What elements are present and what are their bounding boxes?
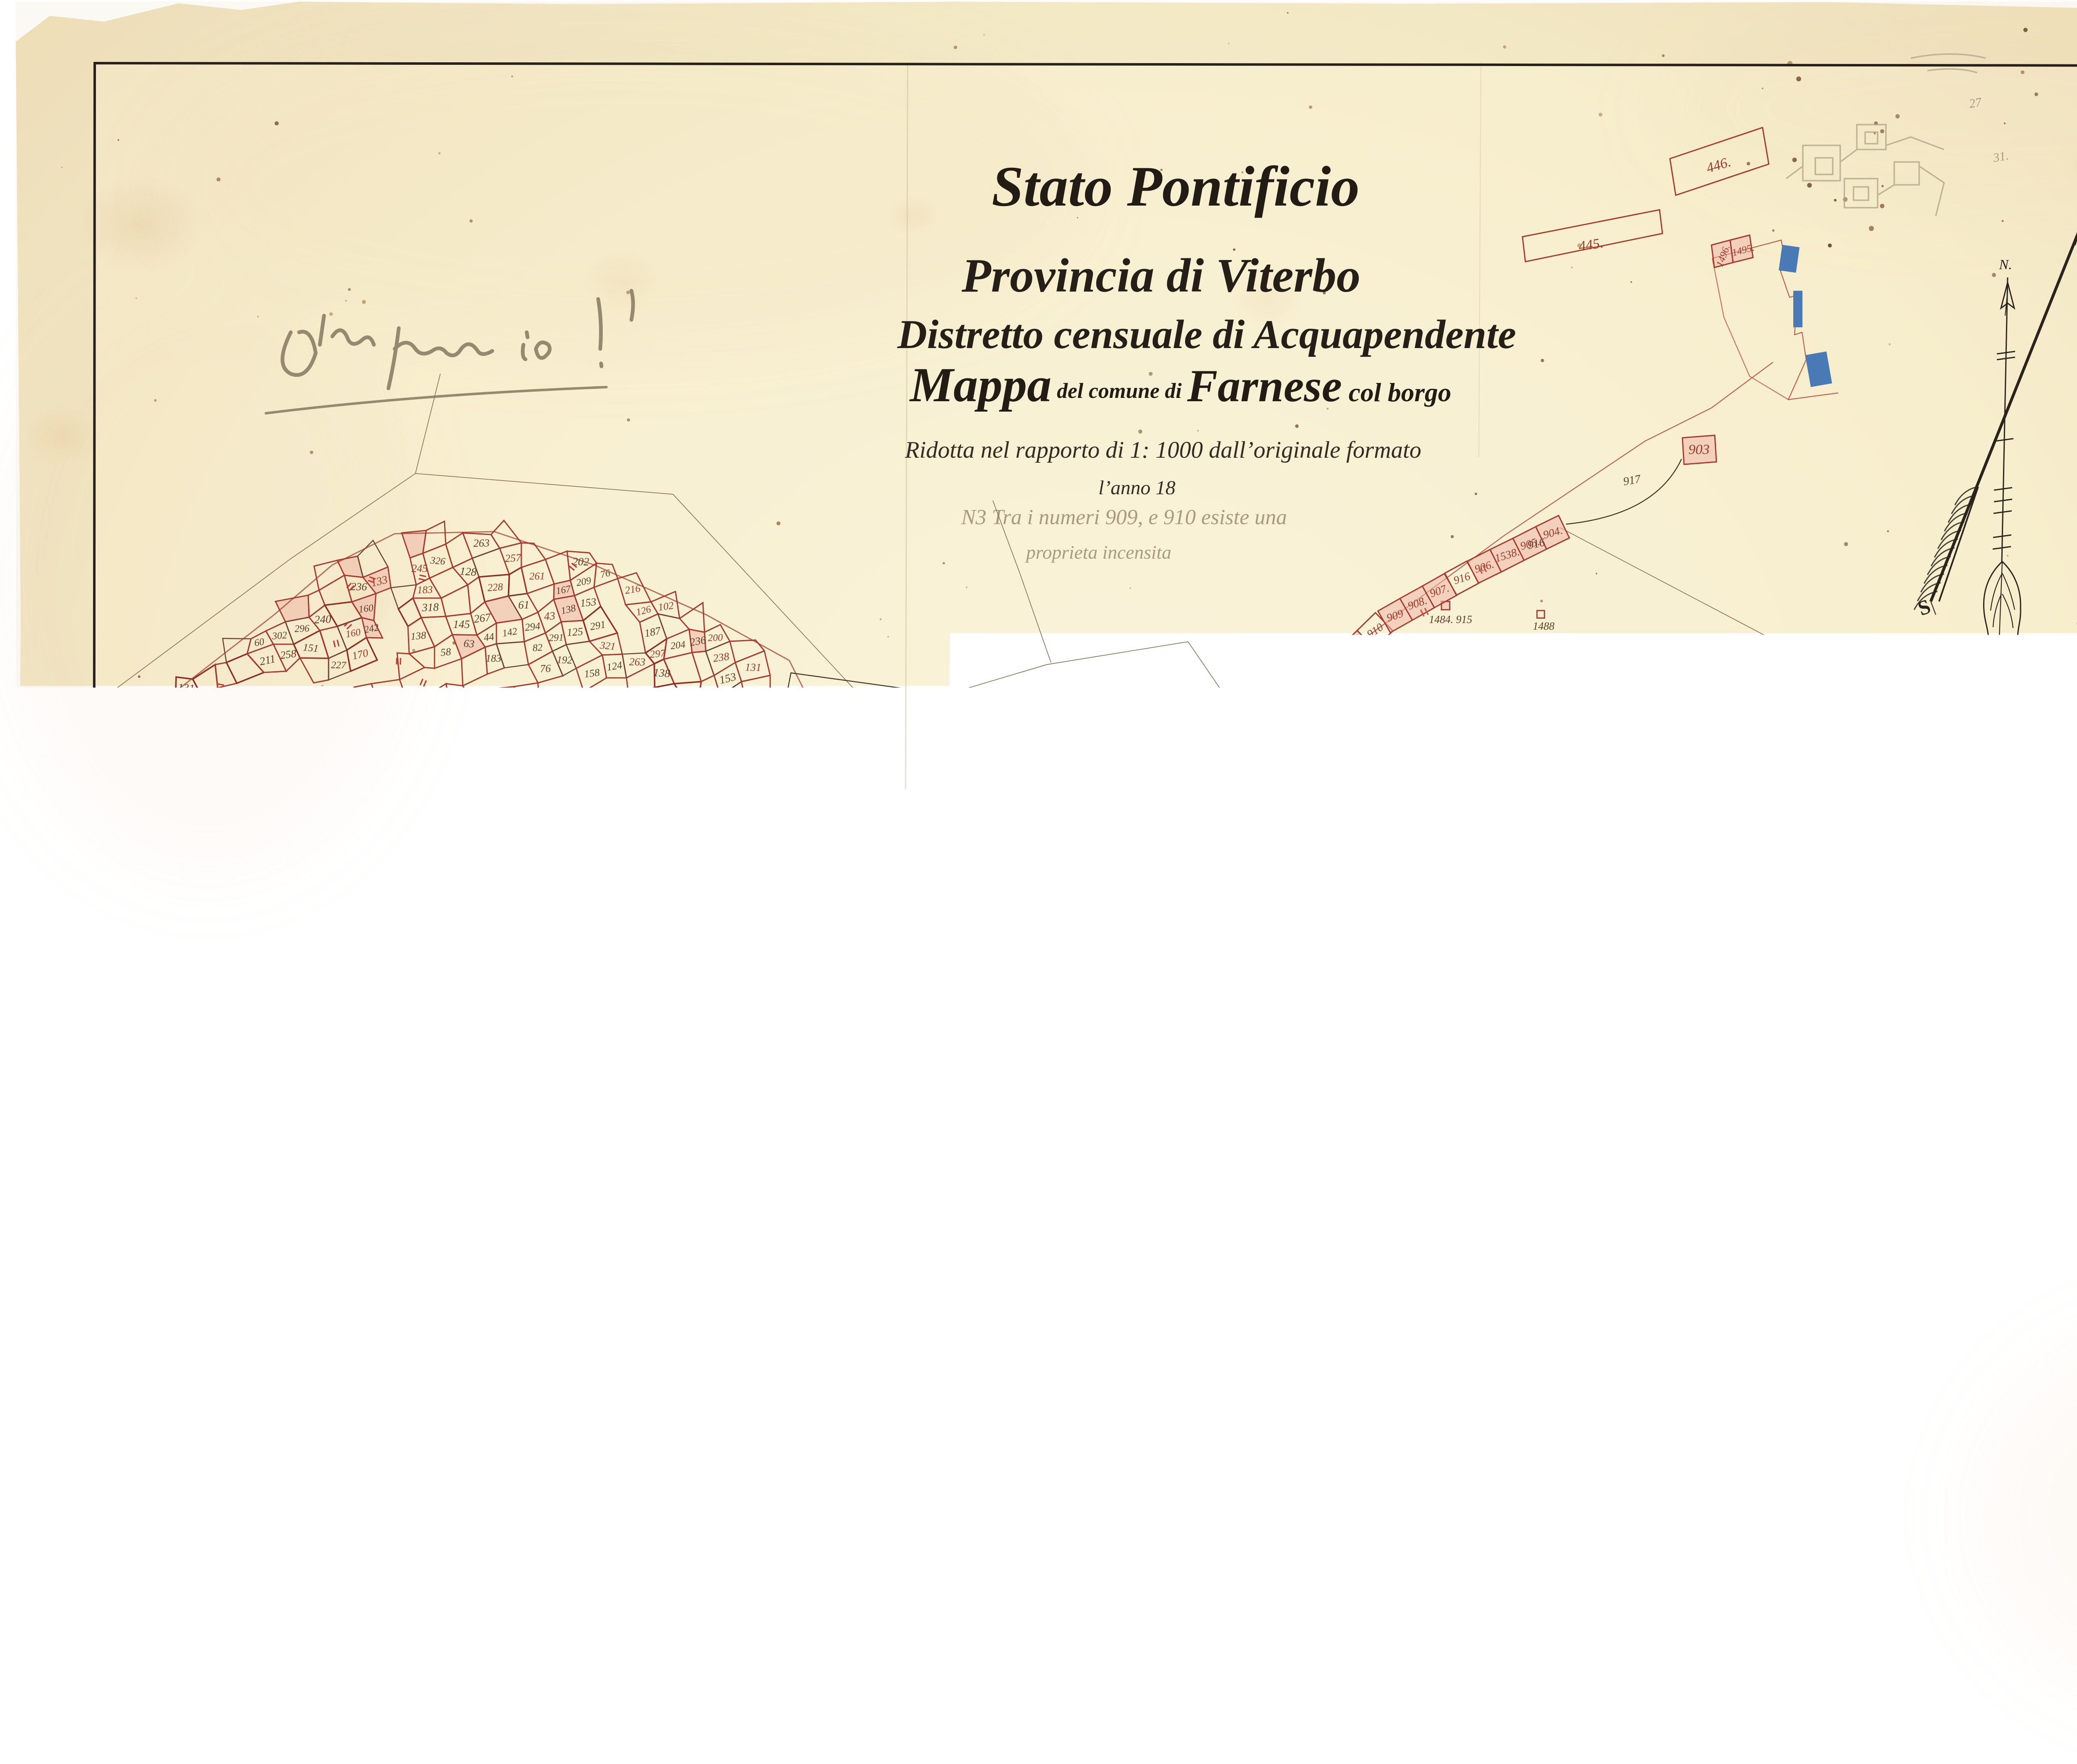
svg-text:321: 321	[599, 640, 616, 652]
svg-text:108: 108	[85, 903, 101, 916]
svg-text:291: 291	[106, 897, 121, 908]
svg-text:1466.: 1466.	[1324, 868, 1353, 881]
svg-text:1180.: 1180.	[665, 1533, 690, 1546]
svg-text:1255: 1255	[1006, 1007, 1029, 1020]
svg-text:164: 164	[643, 930, 661, 944]
svg-text:174: 174	[401, 729, 418, 742]
svg-text:1574: 1574	[303, 1299, 325, 1313]
svg-text:1461.: 1461.	[1384, 1038, 1409, 1050]
svg-text:1448.: 1448.	[1020, 957, 1050, 972]
svg-text:322: 322	[390, 778, 407, 790]
svg-text:76: 76	[540, 662, 551, 675]
svg-text:270: 270	[557, 1010, 573, 1022]
svg-text:296: 296	[295, 623, 310, 634]
svg-text:1469.: 1469.	[1554, 894, 1584, 909]
svg-text:46: 46	[651, 863, 662, 874]
svg-text:1339: 1339	[1646, 1352, 1668, 1366]
svg-text:1248: 1248	[1184, 810, 1207, 823]
svg-text:153: 153	[579, 596, 597, 609]
svg-text:814: 814	[397, 1013, 412, 1026]
svg-text:224: 224	[341, 774, 356, 786]
svg-text:358: 358	[413, 1336, 430, 1348]
svg-text:71: 71	[691, 778, 702, 790]
svg-text:393: 393	[601, 1205, 618, 1217]
svg-text:85: 85	[132, 746, 144, 759]
svg-text:1453.: 1453.	[1081, 973, 1113, 989]
svg-text:1287: 1287	[1335, 902, 1357, 914]
svg-text:117: 117	[298, 926, 313, 938]
svg-text:77: 77	[288, 884, 300, 896]
svg-text:290: 290	[368, 785, 384, 797]
svg-text:32.: 32.	[892, 783, 905, 794]
svg-text:273: 273	[345, 790, 363, 805]
svg-text:61: 61	[180, 827, 191, 839]
svg-text:204: 204	[670, 639, 686, 652]
svg-text:283: 283	[324, 709, 342, 721]
svg-text:801: 801	[566, 1104, 583, 1116]
svg-text:393: 393	[377, 1374, 393, 1386]
svg-text:839: 839	[435, 1333, 450, 1344]
svg-text:74: 74	[380, 949, 393, 963]
svg-text:100: 100	[307, 875, 324, 889]
svg-text:388: 388	[499, 1313, 516, 1325]
svg-text:1555: 1555	[523, 991, 547, 1006]
svg-text:235: 235	[343, 841, 360, 854]
svg-text:102: 102	[658, 600, 675, 613]
svg-text:1340: 1340	[1444, 1227, 1469, 1240]
svg-text:407: 407	[2038, 871, 2055, 883]
svg-text:103: 103	[751, 754, 768, 767]
svg-text:1471: 1471	[1699, 1021, 1727, 1038]
svg-text:327: 327	[302, 714, 320, 726]
svg-text:313: 313	[432, 767, 449, 780]
svg-text:903: 903	[1689, 442, 1710, 457]
svg-text:Scala metrica nel rapporto di: Scala metrica nel rapporto di 1: 1000	[977, 1553, 1267, 1574]
svg-text:151: 151	[606, 734, 624, 747]
svg-text:1561: 1561	[580, 1237, 600, 1248]
svg-text:1460: 1460	[1363, 1076, 1386, 1089]
svg-text:100: 100	[1158, 1505, 1173, 1516]
svg-text:1334: 1334	[1739, 1031, 1765, 1046]
svg-text:839: 839	[283, 1238, 300, 1251]
svg-text:1176.: 1176.	[701, 1393, 728, 1407]
svg-text:862: 862	[427, 1312, 443, 1323]
svg-text:18.: 18.	[1109, 780, 1123, 792]
svg-text:401: 401	[1930, 856, 1946, 867]
svg-text:242: 242	[492, 1028, 510, 1042]
svg-text:199: 199	[352, 724, 368, 735]
svg-text:201: 201	[176, 967, 193, 979]
svg-text:248: 248	[389, 1213, 410, 1230]
svg-text:1256: 1256	[980, 982, 1005, 996]
svg-text:proprieta incensita: proprieta incensita	[1025, 542, 1171, 563]
svg-text:1559: 1559	[466, 1156, 488, 1169]
svg-text:1449.: 1449.	[1022, 981, 1048, 994]
svg-text:1183.: 1183.	[641, 1603, 665, 1615]
svg-text:1328: 1328	[1899, 1102, 1922, 1116]
svg-text:1570: 1570	[458, 1346, 480, 1360]
svg-text:788: 788	[263, 1028, 281, 1043]
svg-text:794: 794	[146, 1021, 164, 1035]
svg-text:280: 280	[360, 763, 378, 777]
svg-text:90: 90	[482, 702, 494, 714]
svg-text:1550: 1550	[103, 1039, 125, 1052]
svg-text:94: 94	[252, 918, 263, 930]
svg-text:82: 82	[532, 642, 543, 654]
svg-text:200: 200	[708, 632, 723, 643]
svg-text:1445.: 1445.	[971, 932, 999, 946]
svg-text:282: 282	[757, 705, 774, 718]
svg-text:1462.: 1462.	[1385, 1054, 1410, 1067]
svg-text:267: 267	[473, 611, 492, 625]
svg-text:256: 256	[614, 1039, 631, 1052]
svg-text:232: 232	[758, 777, 774, 788]
svg-text:1282: 1282	[1321, 1018, 1344, 1030]
svg-text:91: 91	[570, 837, 582, 849]
svg-text:1284: 1284	[1422, 1093, 1448, 1109]
svg-text:1333: 1333	[1812, 1037, 1838, 1052]
svg-text:1570: 1570	[572, 1325, 592, 1336]
svg-text:302: 302	[271, 630, 287, 642]
svg-text:374: 374	[380, 1182, 397, 1195]
svg-text:402: 402	[1952, 859, 1968, 871]
svg-text:316: 316	[76, 810, 94, 823]
svg-text:833: 833	[273, 1124, 290, 1138]
svg-text:802: 802	[452, 1183, 470, 1197]
svg-text:263: 263	[473, 537, 490, 550]
svg-text:1239: 1239	[1364, 807, 1387, 820]
svg-text:200: 200	[1477, 1505, 1492, 1516]
svg-text:31.: 31.	[1992, 149, 2010, 165]
svg-text:258: 258	[347, 1003, 364, 1016]
svg-text:1252: 1252	[987, 808, 1010, 821]
svg-text:151: 151	[302, 642, 319, 654]
svg-text:1565: 1565	[547, 987, 568, 1000]
svg-text:Ridotta nel rapporto di 1: 100: Ridotta nel rapporto di 1: 1000 dall’ori…	[905, 437, 1421, 463]
svg-text:231: 231	[612, 967, 629, 979]
svg-text:131: 131	[372, 930, 388, 941]
svg-text:98: 98	[516, 807, 528, 822]
svg-text:1270: 1270	[273, 1093, 299, 1109]
svg-text:210: 210	[197, 817, 214, 829]
svg-text:9.: 9.	[1280, 739, 1288, 750]
svg-text:1438: 1438	[1820, 1004, 1842, 1016]
svg-text:895: 895	[368, 1210, 385, 1223]
svg-text:1488: 1488	[1533, 620, 1554, 632]
svg-text:52: 52	[192, 797, 203, 809]
svg-text:4.: 4.	[1362, 756, 1370, 768]
svg-text:297: 297	[649, 648, 666, 660]
svg-text:829: 829	[237, 1088, 253, 1100]
svg-text:1484. 915: 1484. 915	[1429, 613, 1472, 626]
svg-text:1545.: 1545.	[1311, 1038, 1336, 1051]
svg-text:1175: 1175	[644, 1433, 665, 1446]
svg-text:790: 790	[147, 1092, 165, 1106]
svg-text:1283: 1283	[1264, 913, 1287, 926]
svg-text:1562: 1562	[134, 1052, 155, 1063]
svg-text:131: 131	[745, 661, 761, 674]
svg-text:1181.: 1181.	[661, 1559, 686, 1571]
svg-text:46: 46	[387, 901, 398, 913]
svg-text:205: 205	[546, 844, 564, 858]
svg-text:399: 399	[624, 1153, 640, 1165]
svg-text:372: 372	[385, 1319, 402, 1332]
svg-text:1305: 1305	[1752, 935, 1770, 945]
svg-text:270: 270	[215, 737, 234, 752]
svg-text:1290: 1290	[1500, 892, 1524, 905]
svg-text:249: 249	[285, 1024, 300, 1036]
svg-text:70: 70	[261, 798, 272, 810]
svg-text:406: 406	[2016, 869, 2032, 880]
svg-text:390: 390	[592, 971, 610, 986]
svg-text:*: *	[678, 984, 687, 1004]
svg-text:138: 138	[653, 666, 671, 680]
svg-text:1288: 1288	[1467, 881, 1490, 894]
svg-text:301: 301	[328, 1084, 344, 1096]
svg-text:382: 382	[248, 1365, 266, 1379]
svg-text:1291: 1291	[1506, 951, 1528, 963]
svg-text:1176: 1176	[613, 1544, 633, 1557]
svg-text:315: 315	[591, 761, 607, 773]
svg-text:1568: 1568	[125, 1030, 147, 1043]
svg-text:19: 19	[1194, 748, 1205, 761]
svg-text:153: 153	[498, 693, 515, 707]
svg-text:214: 214	[478, 844, 495, 856]
svg-text:44: 44	[483, 631, 495, 644]
svg-text:1244: 1244	[1276, 807, 1298, 820]
svg-text:403: 403	[1974, 863, 1989, 874]
svg-text:65: 65	[213, 936, 225, 949]
svg-text:284: 284	[142, 717, 160, 731]
svg-text:858: 858	[292, 1190, 308, 1202]
svg-text:128: 128	[459, 565, 477, 579]
svg-text:1455.: 1455.	[1092, 1001, 1120, 1015]
svg-text:l’anno 18: l’anno 18	[1098, 477, 1175, 499]
svg-text:217: 217	[562, 743, 581, 757]
svg-text:43: 43	[543, 609, 556, 623]
svg-text:1457.: 1457.	[1149, 949, 1177, 962]
svg-text:375: 375	[285, 1170, 301, 1181]
svg-text:259: 259	[343, 700, 360, 714]
svg-text:329: 329	[519, 689, 537, 702]
svg-text:1554: 1554	[592, 1134, 615, 1147]
svg-text:1530.: 1530.	[2041, 953, 2070, 967]
svg-text:1286: 1286	[1298, 854, 1321, 867]
svg-text:1339: 1339	[1564, 1025, 1589, 1039]
svg-text:291: 291	[549, 632, 564, 643]
svg-text:60: 60	[1029, 1505, 1039, 1516]
svg-text:195: 195	[94, 875, 110, 887]
svg-text:1242: 1242	[1321, 806, 1344, 818]
svg-text:22: 22	[1044, 771, 1055, 783]
svg-text:30: 30	[929, 1505, 940, 1516]
svg-text:849: 849	[170, 1017, 188, 1030]
svg-text:3.: 3.	[1358, 731, 1367, 743]
svg-text:162: 162	[128, 958, 144, 971]
svg-text:101: 101	[250, 709, 266, 720]
svg-text:319: 319	[152, 904, 169, 916]
svg-text:318: 318	[421, 601, 439, 613]
svg-text:1327: 1327	[1983, 1140, 2010, 1156]
svg-text:1336: 1336	[1674, 968, 1700, 983]
svg-text:1316: 1316	[2018, 965, 2040, 977]
svg-text:1470: 1470	[1625, 970, 1648, 983]
svg-text:14.: 14.	[1180, 768, 1193, 780]
svg-text:107: 107	[202, 768, 220, 781]
svg-text:35: 35	[849, 783, 860, 794]
svg-text:1569: 1569	[640, 1124, 661, 1136]
svg-text:1259: 1259	[924, 953, 947, 965]
svg-text:S.: S.	[1991, 663, 2002, 679]
svg-text:114: 114	[372, 716, 387, 728]
svg-text:245: 245	[412, 562, 428, 574]
svg-text:12.: 12.	[1219, 750, 1232, 761]
svg-text:1544.: 1544.	[1359, 842, 1391, 857]
svg-text:191: 191	[668, 924, 684, 936]
svg-text:366: 366	[422, 1100, 439, 1114]
svg-text:33: 33	[878, 783, 889, 794]
svg-text:61: 61	[518, 599, 530, 611]
svg-text:1271: 1271	[253, 1185, 279, 1200]
svg-text:85: 85	[747, 804, 758, 816]
svg-text:1533.: 1533.	[1950, 943, 1980, 958]
svg-text:271: 271	[410, 1124, 428, 1138]
svg-text:21.: 21.	[1219, 722, 1232, 733]
svg-text:47: 47	[485, 917, 496, 929]
svg-text:172: 172	[526, 778, 543, 791]
svg-text:1573: 1573	[376, 1300, 399, 1313]
svg-text:1177,: 1177,	[649, 1460, 674, 1473]
svg-text:399: 399	[634, 1029, 651, 1041]
svg-text:1569: 1569	[309, 1254, 330, 1266]
svg-text:809: 809	[366, 977, 381, 988]
svg-text:42: 42	[456, 902, 468, 915]
svg-text:1487.: 1487.	[1375, 648, 1403, 661]
svg-text:238: 238	[712, 650, 730, 664]
svg-text:N.: N.	[1998, 257, 2012, 272]
svg-text:228: 228	[487, 581, 503, 594]
svg-text:855: 855	[481, 1197, 498, 1210]
svg-text:1185.: 1185.	[627, 1627, 652, 1639]
svg-text:842: 842	[524, 1114, 541, 1127]
svg-text:202: 202	[176, 758, 192, 770]
svg-text:145: 145	[453, 618, 470, 631]
svg-text:88: 88	[623, 775, 635, 789]
svg-text:80: 80	[1096, 1505, 1106, 1516]
svg-text:1575: 1575	[398, 1364, 419, 1377]
svg-text:1557: 1557	[340, 982, 363, 996]
svg-text:1564: 1564	[442, 1232, 464, 1246]
svg-text:60: 60	[253, 636, 265, 649]
svg-text:281: 281	[411, 982, 429, 996]
svg-text:1555: 1555	[385, 1109, 406, 1122]
svg-text:1182.: 1182.	[654, 1579, 678, 1591]
svg-text:190: 190	[428, 694, 447, 709]
svg-text:1276: 1276	[660, 1245, 686, 1260]
svg-text:1467.: 1467.	[1490, 851, 1518, 865]
svg-text:832: 832	[399, 1294, 415, 1305]
svg-text:326: 326	[430, 555, 446, 567]
svg-text:211: 211	[640, 841, 657, 854]
svg-text:1341: 1341	[1967, 932, 1988, 945]
svg-text:159: 159	[577, 789, 595, 802]
svg-text:58: 58	[440, 646, 452, 659]
svg-text:235: 235	[549, 1126, 567, 1139]
svg-text:11.: 11.	[1236, 751, 1248, 763]
svg-text:383: 383	[542, 1250, 560, 1262]
svg-text:233: 233	[176, 1106, 192, 1119]
svg-text:353: 353	[420, 1358, 436, 1370]
svg-text:254: 254	[182, 1129, 198, 1141]
svg-text:332: 332	[511, 1070, 528, 1083]
svg-text:1423,: 1423,	[686, 1344, 712, 1356]
svg-text:355: 355	[332, 1244, 349, 1257]
svg-text:408: 408	[2060, 874, 2076, 885]
svg-text:164: 164	[255, 938, 273, 952]
svg-text:311: 311	[358, 957, 375, 970]
svg-text:90: 90	[496, 746, 508, 759]
svg-text:160: 160	[358, 603, 374, 615]
svg-text:1465.: 1465.	[1265, 860, 1295, 875]
svg-text:304: 304	[555, 868, 571, 880]
svg-text:251: 251	[439, 926, 457, 941]
svg-text:306: 306	[349, 932, 367, 946]
svg-text:835: 835	[529, 1135, 547, 1149]
svg-text:233: 233	[636, 767, 654, 780]
svg-text:301: 301	[450, 691, 466, 704]
svg-text:240: 240	[314, 613, 331, 626]
svg-text:306: 306	[694, 798, 712, 811]
svg-text:393: 393	[269, 1198, 286, 1211]
svg-text:123: 123	[306, 736, 324, 749]
svg-text:1546.: 1546.	[781, 795, 815, 811]
svg-text:Il Capo della Sezione Topograf: Il Capo della Sezione Topografica	[1615, 1636, 1878, 1657]
svg-text:263: 263	[307, 947, 322, 959]
svg-text:1477.: 1477.	[1849, 849, 1882, 865]
svg-text:285: 285	[471, 964, 487, 976]
svg-text:I: I	[907, 941, 915, 964]
svg-text:103: 103	[473, 753, 488, 764]
svg-text:150: 150	[1318, 1505, 1333, 1516]
svg-text:20.: 20.	[1198, 724, 1211, 734]
svg-text:10: 10	[863, 1505, 873, 1516]
svg-text:1261: 1261	[761, 929, 788, 945]
svg-text:81: 81	[683, 826, 697, 840]
svg-text:1268: 1268	[707, 1112, 732, 1126]
svg-text:1331: 1331	[1902, 1046, 1927, 1061]
svg-text:17.: 17.	[1127, 777, 1141, 789]
svg-text:879: 879	[466, 1297, 483, 1310]
svg-text:808: 808	[441, 1351, 459, 1364]
svg-text:1541.: 1541.	[1032, 743, 1066, 760]
svg-text:1263: 1263	[918, 993, 941, 1005]
svg-text:855: 855	[394, 1135, 410, 1147]
svg-text:20: 20	[896, 1505, 906, 1516]
svg-text:1247: 1247	[1234, 809, 1257, 822]
svg-text:784: 784	[95, 995, 110, 1006]
svg-text:294: 294	[524, 621, 541, 633]
svg-text:1568: 1568	[211, 1214, 231, 1225]
svg-text:146: 146	[1433, 1082, 1450, 1094]
svg-text:1564: 1564	[294, 1138, 315, 1150]
svg-text:786: 786	[624, 1009, 641, 1023]
svg-text:79: 79	[319, 827, 331, 839]
svg-text:129: 129	[562, 816, 578, 828]
svg-text:241: 241	[404, 823, 421, 837]
svg-text:56: 56	[159, 763, 170, 775]
svg-text:261: 261	[529, 571, 545, 582]
svg-text:326: 326	[493, 1096, 510, 1109]
